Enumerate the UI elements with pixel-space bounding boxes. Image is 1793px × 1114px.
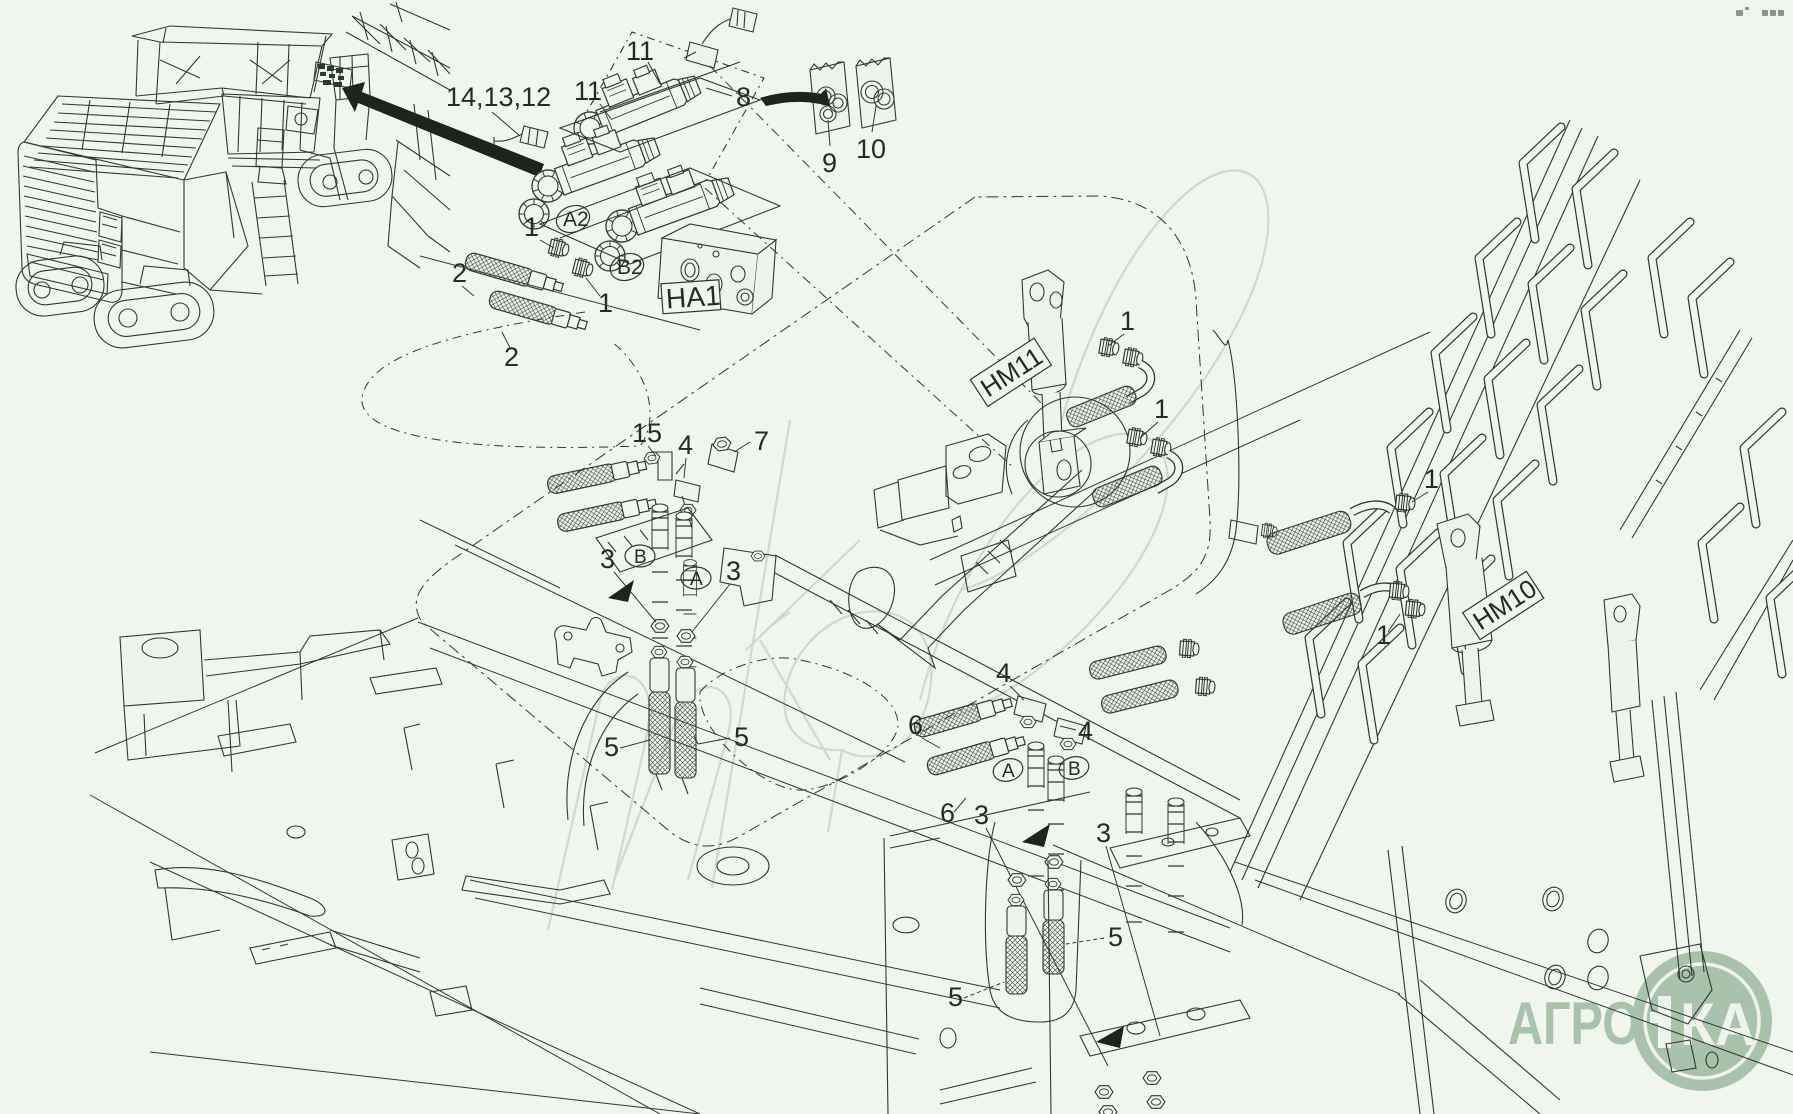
svg-text:1: 1	[1376, 620, 1391, 650]
svg-text:11: 11	[626, 36, 654, 66]
svg-text:5: 5	[604, 732, 619, 762]
svg-text:2: 2	[504, 342, 519, 372]
svg-text:5: 5	[948, 982, 963, 1012]
svg-text:5: 5	[734, 722, 749, 752]
svg-text:7: 7	[754, 426, 769, 456]
svg-text:АГРО: АГРО	[1508, 990, 1640, 1057]
svg-text:3: 3	[600, 544, 615, 574]
svg-text:4: 4	[678, 430, 693, 460]
svg-text:3: 3	[1096, 818, 1111, 848]
svg-text:1: 1	[1154, 394, 1169, 424]
svg-text:4: 4	[1078, 716, 1093, 746]
svg-text:11: 11	[574, 76, 602, 106]
svg-text:15: 15	[632, 418, 662, 448]
svg-text:9: 9	[822, 148, 837, 178]
svg-text:HA1: HA1	[665, 280, 721, 315]
svg-text:1: 1	[598, 288, 613, 318]
svg-text:10: 10	[856, 134, 886, 164]
svg-text:14,13,12: 14,13,12	[446, 82, 551, 112]
svg-text:2: 2	[452, 258, 467, 288]
svg-text:A: A	[1002, 761, 1015, 782]
svg-text:A: A	[690, 569, 703, 590]
svg-text:5: 5	[1108, 922, 1123, 952]
svg-text:B: B	[1068, 759, 1081, 780]
svg-text:1: 1	[524, 212, 539, 242]
svg-text:B2: B2	[617, 256, 643, 279]
svg-text:4: 4	[996, 658, 1011, 688]
svg-text:1: 1	[1120, 306, 1135, 336]
svg-text:3: 3	[726, 556, 741, 586]
svg-text:A2: A2	[563, 208, 589, 231]
svg-text:8: 8	[736, 82, 751, 112]
svg-text:6: 6	[908, 710, 923, 740]
svg-text:1: 1	[1424, 464, 1439, 494]
svg-text:B: B	[634, 547, 647, 568]
